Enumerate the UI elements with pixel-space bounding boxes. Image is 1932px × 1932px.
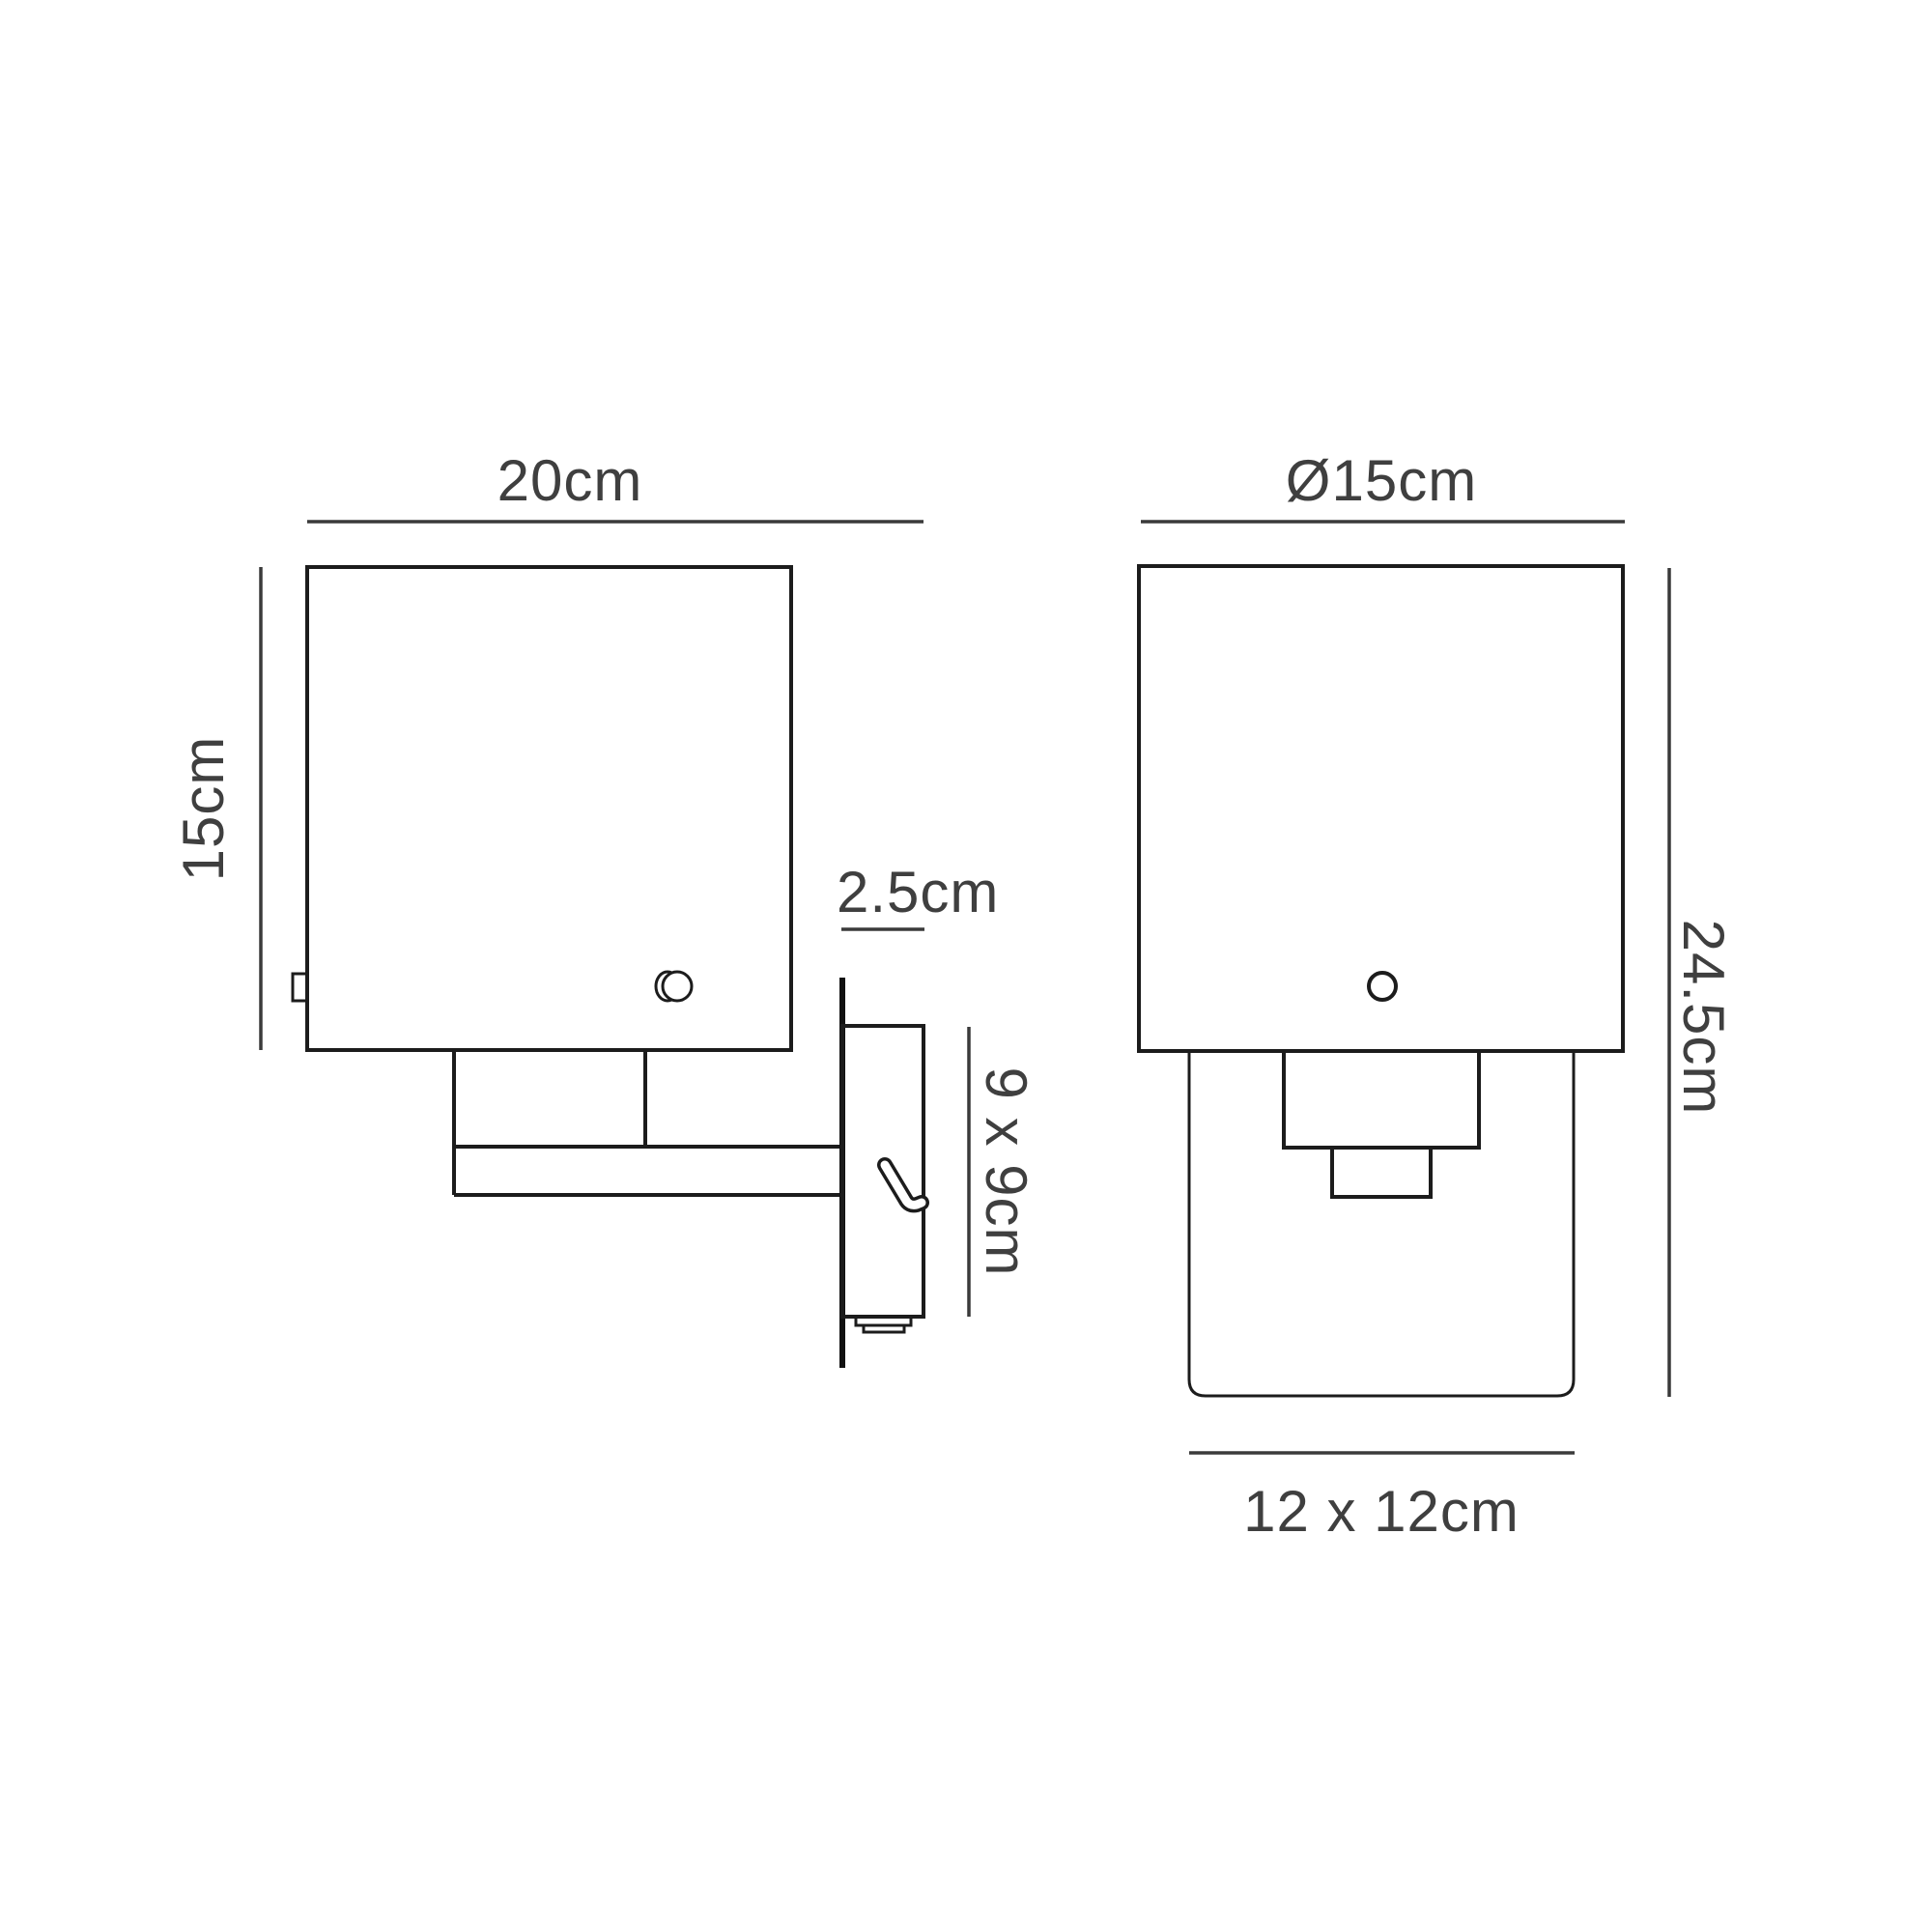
connector-step-2 — [864, 1325, 904, 1332]
dimension-label-glass-size: 12 x 12cm — [1243, 1479, 1520, 1544]
dimension-label-depth: 20cm — [497, 448, 643, 513]
side-view: 20cm 15cm — [171, 448, 1038, 1368]
front-view: Ø15cm 24.5cm 12 x 12cm — [1139, 448, 1736, 1544]
dimension-label-shade-height: 15cm — [171, 736, 236, 882]
thumbscrew-front — [1369, 973, 1396, 1000]
bracket-plate-front — [1284, 1051, 1479, 1148]
lamp-holder-front — [1332, 1148, 1431, 1197]
thumbscrew-side-face — [663, 972, 692, 1001]
dimension-label-backplate-depth: 2.5cm — [837, 860, 999, 924]
shade-front-outline — [1139, 566, 1623, 1051]
switch-tab — [293, 974, 307, 1001]
wall-light-dimension-diagram: 20cm 15cm — [0, 0, 1932, 1932]
diagram-canvas: 20cm 15cm — [0, 0, 1932, 1932]
glass-box-outline — [1189, 1051, 1574, 1396]
dimension-label-diameter: Ø15cm — [1286, 448, 1477, 513]
shade-side-outline — [307, 567, 791, 1050]
dimension-label-backplate-size: 9 x 9cm — [974, 1066, 1038, 1276]
dimension-label-total-height: 24.5cm — [1671, 920, 1736, 1116]
